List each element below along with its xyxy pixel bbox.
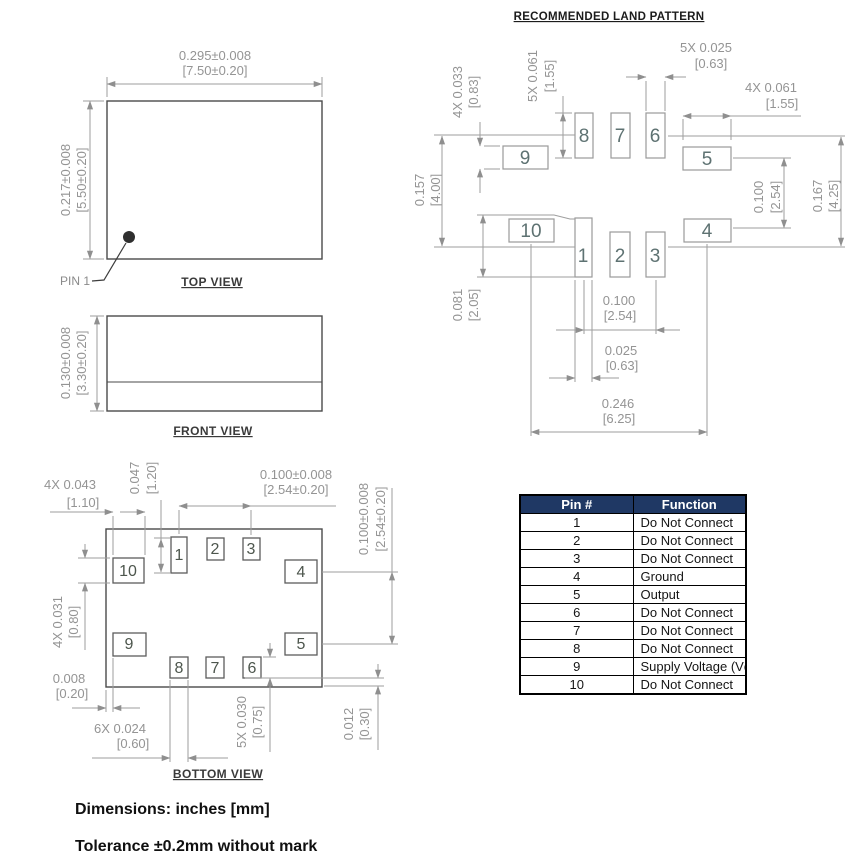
dim-text: [0.63]: [606, 358, 639, 373]
package-body-top: [107, 101, 322, 259]
pin-number-cell: 4: [520, 568, 633, 586]
table-row: 7Do Not Connect: [520, 622, 746, 640]
pad-4-number: 4: [297, 564, 306, 581]
pad-8-number: 8: [175, 660, 184, 677]
pin1-label: PIN 1: [60, 274, 90, 288]
land-pad-9-number: 9: [520, 148, 531, 169]
dim-text: 0.012: [341, 708, 356, 741]
land-pad-10-number: 10: [520, 221, 541, 242]
pin1-dot: [123, 231, 135, 243]
dim-text: 5X 0.025: [680, 40, 732, 55]
dim-text: [0.63]: [695, 56, 728, 71]
dim-text: [0.20]: [56, 686, 89, 701]
land-pad-7-number: 7: [615, 126, 626, 147]
table-row: 3Do Not Connect: [520, 550, 746, 568]
bottom-view-title: BOTTOM VIEW: [173, 767, 263, 781]
dim-text: 5X 0.061: [525, 50, 540, 102]
dim-text: 0.157: [412, 174, 427, 207]
pin-function-table: Pin # Function 1Do Not Connect2Do Not Co…: [519, 494, 747, 695]
front-view: 0.130±0.008 [3.30±0.20] FRONT VIEW: [58, 316, 322, 438]
dim-top-width: 0.295±0.008 [7.50±0.20]: [107, 48, 322, 97]
table-header-row: Pin # Function: [520, 495, 746, 514]
dim-text: 0.100±0.008: [260, 467, 332, 482]
table-row: 6Do Not Connect: [520, 604, 746, 622]
land-pad-5-number: 5: [702, 149, 713, 170]
dim-text: [2.54±0.20]: [373, 487, 388, 552]
dim-text: [7.50±0.20]: [183, 63, 248, 78]
dim-text: 0.008: [53, 671, 86, 686]
table-row: 10Do Not Connect: [520, 676, 746, 695]
dim-text: 4X 0.061: [745, 80, 797, 95]
dim-lp-pitch-right: 0.100 [2.54]: [733, 158, 791, 228]
pin-function-cell: Output: [633, 586, 746, 604]
dim-text: [0.60]: [117, 736, 150, 751]
pin-number-cell: 8: [520, 640, 633, 658]
pin-function-cell: Do Not Connect: [633, 604, 746, 622]
table-row: 8Do Not Connect: [520, 640, 746, 658]
dim-text: [0.83]: [466, 76, 481, 109]
dim-text: [4.25]: [826, 180, 841, 213]
land-pattern: RECOMMENDED LAND PATTERN 1 2 3 4 5 6 7 8…: [412, 11, 845, 436]
dim-text: [2.54±0.20]: [264, 482, 329, 497]
pin-function-cell: Supply Voltage (Vdd): [633, 658, 746, 676]
table-row: 9Supply Voltage (Vdd): [520, 658, 746, 676]
dim-text: [2.54]: [768, 181, 783, 214]
dim-front-height: 0.130±0.008 [3.30±0.20]: [58, 316, 104, 411]
pin-function-cell: Do Not Connect: [633, 640, 746, 658]
dim-text: [5.50±0.20]: [74, 148, 89, 213]
dim-top-height: 0.217±0.008 [5.50±0.20]: [58, 101, 104, 259]
dim-lp-top-pad-length: 5X 0.061 [1.55]: [525, 50, 572, 158]
pad-2-number: 2: [211, 541, 220, 558]
pad-10-number: 10: [119, 563, 137, 580]
pin-number-header: Pin #: [520, 495, 633, 514]
pin-number-cell: 10: [520, 676, 633, 695]
dim-bv-side-pad-height: 4X 0.031 [0.80]: [50, 544, 110, 650]
pin-function-cell: Do Not Connect: [633, 676, 746, 695]
extension-line: [477, 215, 575, 219]
dim-text: [0.75]: [250, 706, 265, 739]
land-pad-1-number: 1: [578, 246, 589, 267]
top-view-title: TOP VIEW: [181, 275, 243, 289]
land-pad-6-number: 6: [650, 126, 661, 147]
dim-text: 0.217±0.008: [58, 144, 73, 216]
pin-function-cell: Ground: [633, 568, 746, 586]
pin-number-cell: 1: [520, 514, 633, 532]
front-view-title: FRONT VIEW: [173, 424, 253, 438]
bottom-view: 1 2 3 4 5 6 7 8 9 10 4X 0.043 [1.10] 0.0…: [44, 462, 398, 781]
dim-text: [4.00]: [428, 174, 443, 207]
dim-text: [1.55]: [542, 60, 557, 93]
pad-3-number: 3: [247, 541, 256, 558]
pin-number-cell: 6: [520, 604, 633, 622]
dim-text: 5X 0.030: [234, 696, 249, 748]
pin-function-cell: Do Not Connect: [633, 622, 746, 640]
dim-text: [0.80]: [66, 606, 81, 639]
pin-table-body: 1Do Not Connect2Do Not Connect3Do Not Co…: [520, 514, 746, 695]
dim-text: 0.100±0.008: [356, 483, 371, 555]
dim-text: [1.10]: [67, 495, 100, 510]
land-pad-2-number: 2: [615, 246, 626, 267]
table-row: 1Do Not Connect: [520, 514, 746, 532]
dim-bv-pitch-top: 0.100±0.008 [2.54±0.20]: [179, 467, 336, 535]
pin-function-cell: Do Not Connect: [633, 550, 746, 568]
pin-number-cell: 5: [520, 586, 633, 604]
land-pad-3-number: 3: [650, 246, 661, 267]
dim-text: [2.05]: [466, 289, 481, 322]
dim-text: 0.047: [127, 462, 142, 495]
datasheet-page: 0.295±0.008 [7.50±0.20] 0.217±0.008 [5.5…: [0, 0, 850, 862]
dim-lp-top-pad-width: 5X 0.025 [0.63]: [626, 40, 732, 111]
pad-9-number: 9: [125, 636, 134, 653]
dim-text: 0.295±0.008: [179, 48, 251, 63]
dim-lp-side-pad-length: 4X 0.061 [1.55]: [683, 80, 801, 140]
dim-text: 0.246: [602, 396, 635, 411]
dim-bv-pad-width: 6X 0.024 [0.60]: [92, 680, 228, 762]
dim-text: [1.20]: [144, 462, 159, 495]
dim-lp-side-pad-height: 4X 0.033 [0.83]: [450, 66, 500, 193]
dim-text: [6.25]: [603, 411, 636, 426]
land-pattern-pads: 1 2 3 4 5 6 7 8 9 10: [503, 113, 731, 277]
pin-number-cell: 3: [520, 550, 633, 568]
table-row: 2Do Not Connect: [520, 532, 746, 550]
tolerance-note: Tolerance ±0.2mm without mark: [75, 838, 317, 856]
dim-text: [0.30]: [357, 708, 372, 741]
top-view: 0.295±0.008 [7.50±0.20] 0.217±0.008 [5.5…: [58, 48, 322, 289]
pin-function-cell: Do Not Connect: [633, 532, 746, 550]
dim-text: 0.167: [810, 180, 825, 213]
dim-text: 4X 0.031: [50, 596, 65, 648]
package-body-front: [107, 316, 322, 411]
pin-number-cell: 2: [520, 532, 633, 550]
dim-text: 6X 0.024: [94, 721, 146, 736]
pin-function-cell: Do Not Connect: [633, 514, 746, 532]
pin-number-cell: 9: [520, 658, 633, 676]
table-row: 4Ground: [520, 568, 746, 586]
land-pad-4-number: 4: [702, 221, 713, 242]
dim-text: 4X 0.043: [44, 477, 96, 492]
pin-number-cell: 7: [520, 622, 633, 640]
dim-text: 0.100: [751, 181, 766, 214]
function-header: Function: [633, 495, 746, 514]
pad-7-number: 7: [211, 660, 220, 677]
dim-text: 0.130±0.008: [58, 327, 73, 399]
pad-1-number: 1: [175, 547, 184, 564]
land-pad-8-number: 8: [579, 126, 590, 147]
dim-text: 0.025: [605, 343, 638, 358]
dim-text: [1.55]: [766, 96, 799, 111]
land-pattern-title: RECOMMENDED LAND PATTERN: [514, 11, 705, 23]
table-row: 5Output: [520, 586, 746, 604]
dimensions-note: Dimensions: inches [mm]: [75, 801, 270, 819]
dim-bv-pitch-right: 0.100±0.008 [2.54±0.20]: [322, 483, 398, 644]
pad-5-number: 5: [297, 636, 306, 653]
dim-text: [3.30±0.20]: [74, 331, 89, 396]
pad-6-number: 6: [248, 660, 257, 677]
dim-text: [2.54]: [604, 308, 637, 323]
dim-text: 0.081: [450, 289, 465, 322]
dim-text: 0.100: [603, 293, 636, 308]
dim-text: 4X 0.033: [450, 66, 465, 118]
